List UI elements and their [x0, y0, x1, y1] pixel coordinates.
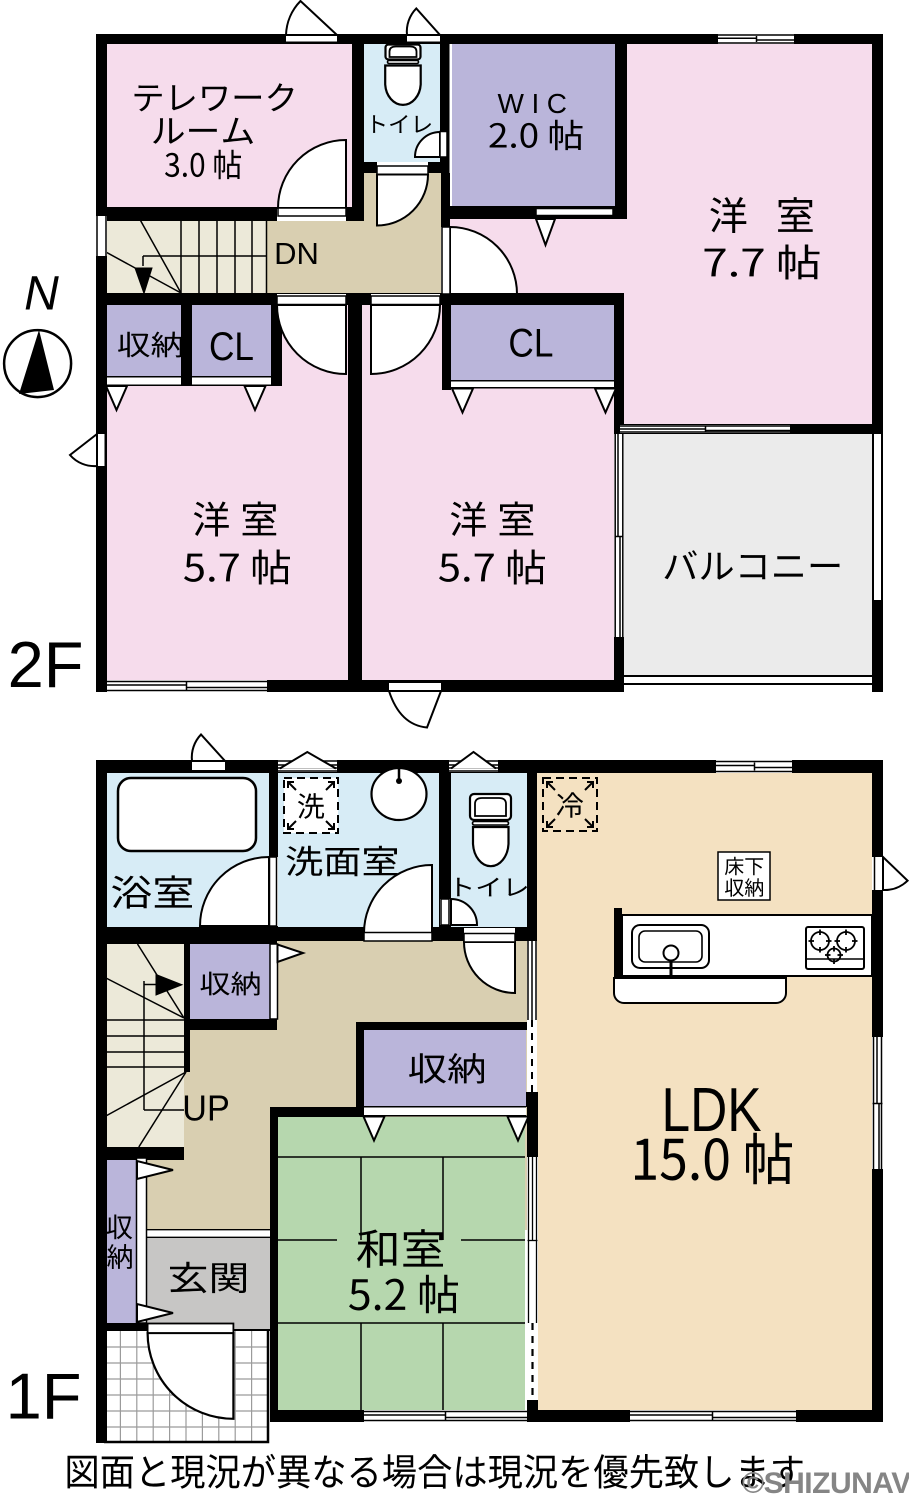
- svg-text:DN: DN: [274, 236, 319, 271]
- svg-text:LDK: LDK: [661, 1076, 761, 1146]
- svg-text:CL: CL: [508, 320, 553, 365]
- svg-text:1F: 1F: [6, 1360, 82, 1433]
- svg-text:UP: UP: [182, 1089, 230, 1129]
- svg-text:WIC: WIC: [498, 88, 575, 119]
- svg-text:CL: CL: [209, 324, 254, 369]
- svg-text:©SHIZUNAVI: ©SHIZUNAVI: [742, 1467, 909, 1500]
- svg-text:2F: 2F: [8, 628, 84, 701]
- svg-text:N: N: [24, 267, 59, 320]
